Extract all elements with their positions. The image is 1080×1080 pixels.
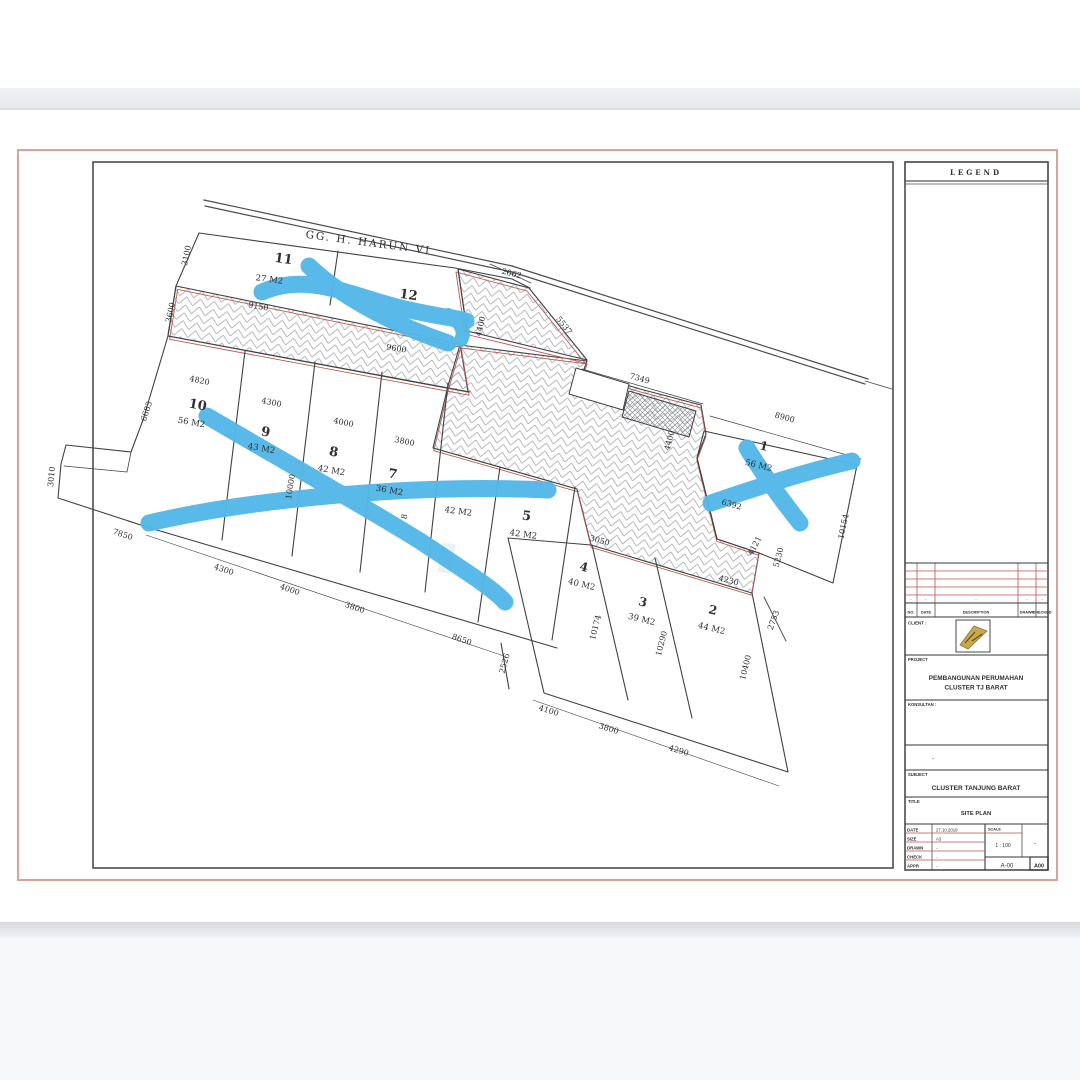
scale-label: SCALE: [988, 828, 1001, 832]
revision-header: DATE: [921, 610, 932, 615]
info-row-label: DATE: [907, 828, 919, 833]
scale-value: 1 : 100: [995, 843, 1011, 849]
project-name: CLUSTER TJ BARAT: [944, 685, 1007, 692]
lot-number: 11: [273, 251, 293, 268]
info-row-label: APPR: [907, 864, 920, 869]
scale-dash: -: [1034, 841, 1036, 847]
lot-number: 12: [398, 287, 418, 304]
project-label: PROJECT: [908, 657, 928, 662]
viewer-bottom-area: [0, 938, 1080, 1080]
info-row-label: CHECK: [907, 855, 923, 860]
revision-header: NO.: [908, 610, 915, 615]
sheet-number: A-00: [1001, 864, 1014, 870]
consultant-label: KONSULTAN :: [908, 702, 936, 707]
drawing-viewer: GG. H. HARUN VI3100360091509600206255374…: [0, 0, 1080, 1080]
info-row-value: 27.10.2019: [936, 828, 958, 833]
info-row-label: DRAWN: [907, 846, 923, 851]
info-row-value: A3: [936, 837, 942, 842]
note-dash: -: [932, 756, 934, 762]
project-name: PEMBANGUNAN PERUMAHAN: [929, 675, 1024, 682]
client-label: CLIENT :: [908, 621, 927, 626]
title-label: TITLE: [908, 799, 920, 804]
site-plan-canvas: GG. H. HARUN VI3100360091509600206255374…: [0, 0, 1080, 1080]
sheet-tag: A00: [1034, 864, 1044, 870]
revision-header: DESCRIPTION: [963, 610, 990, 615]
title-value: SITE PLAN: [961, 811, 991, 817]
legend-title: LEGEND: [950, 168, 1002, 177]
info-row-label: SIZE: [907, 837, 917, 842]
subject-label: SUBJECT: [908, 772, 928, 777]
page-separator-bottom: [0, 922, 1080, 938]
lot-number: 10: [187, 397, 207, 415]
dimension-label: 3010: [46, 466, 57, 487]
viewer-top-area: [0, 0, 1080, 88]
subject-value: CLUSTER TANJUNG BARAT: [932, 785, 1021, 792]
page-separator-top: [0, 88, 1080, 110]
revision-header: CHECKED: [1032, 610, 1051, 615]
